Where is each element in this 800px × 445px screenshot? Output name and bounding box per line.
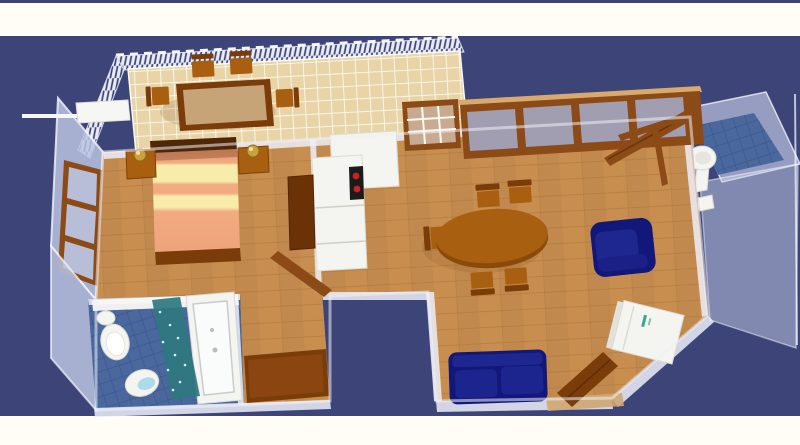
render-viewport[interactable] [0,0,800,445]
dining-chair [475,183,501,208]
double-bed [152,149,240,256]
nightstand-left [126,149,156,179]
cooktop [349,166,364,200]
screenshot-root [0,0,800,445]
lamp-icon [247,145,259,157]
kitchen-window [402,99,461,151]
storage-desk [244,349,329,403]
top-navy-line [0,0,800,3]
balcony-table [176,79,274,131]
sofa [448,349,548,404]
dining-chair [503,267,529,292]
balcony-chair [229,50,252,74]
dining-chair [469,271,495,296]
wardrobe [288,175,315,250]
nightstand-right [238,145,269,174]
balcony-chair [275,87,299,108]
armchair [589,217,656,278]
dining-chair [507,179,533,204]
balcony-chair [191,53,214,77]
balcony-chair [145,85,169,106]
right-wall-plane [700,164,798,348]
